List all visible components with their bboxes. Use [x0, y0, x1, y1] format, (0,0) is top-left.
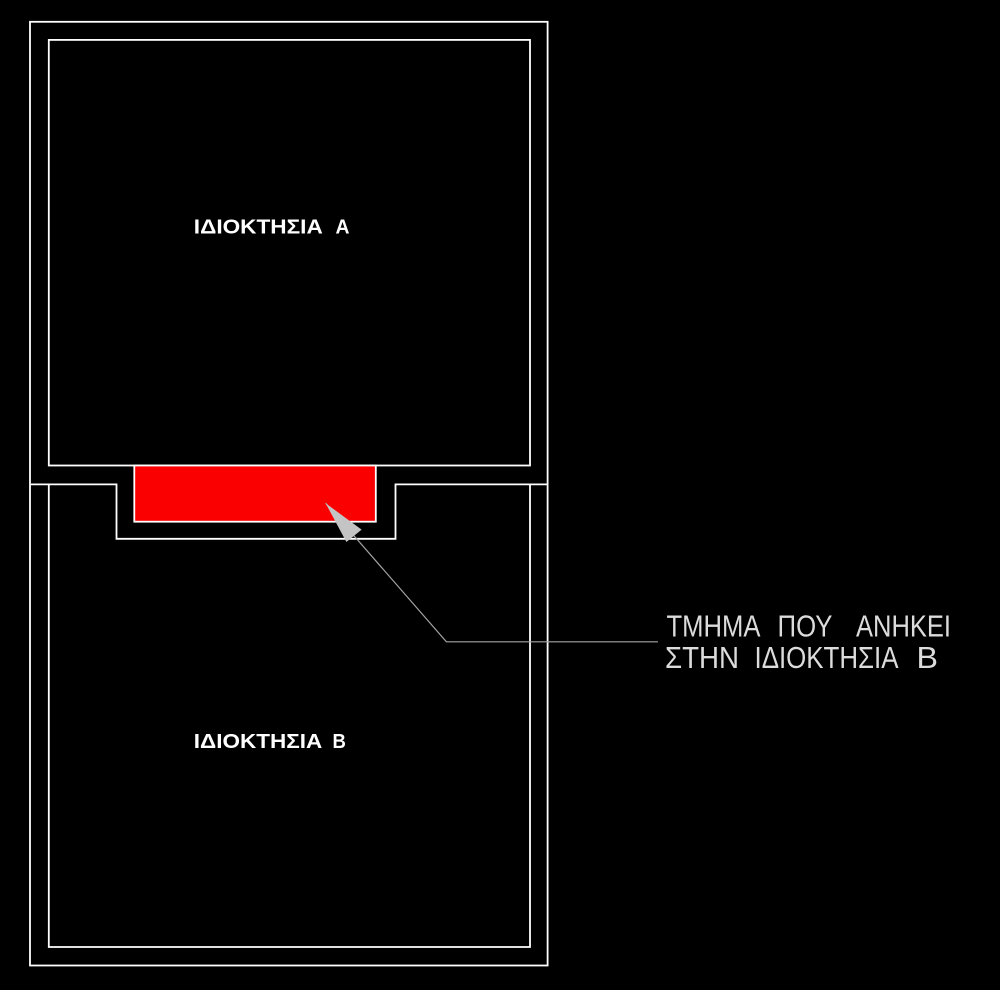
svg-text:Β: Β: [333, 731, 346, 753]
svg-text:ΙΔΙΟΚΤΗΣΙΑ: ΙΔΙΟΚΤΗΣΙΑ: [755, 642, 900, 675]
svg-text:Α: Α: [336, 216, 350, 238]
svg-text:ΣΤΗΝ: ΣΤΗΝ: [665, 642, 739, 675]
svg-text:ΙΔΙΟΚΤΗΣΙΑ: ΙΔΙΟΚΤΗΣΙΑ: [194, 216, 323, 238]
svg-text:ΙΔΙΟΚΤΗΣΙΑ: ΙΔΙΟΚΤΗΣΙΑ: [194, 731, 323, 753]
svg-text:ΠΟΥ: ΠΟΥ: [778, 611, 833, 644]
svg-text:ΤΜΗΜΑ: ΤΜΗΜΑ: [667, 611, 762, 644]
svg-text:Β: Β: [917, 642, 939, 675]
svg-text:ΑΝΗΚΕΙ: ΑΝΗΚΕΙ: [856, 611, 951, 644]
